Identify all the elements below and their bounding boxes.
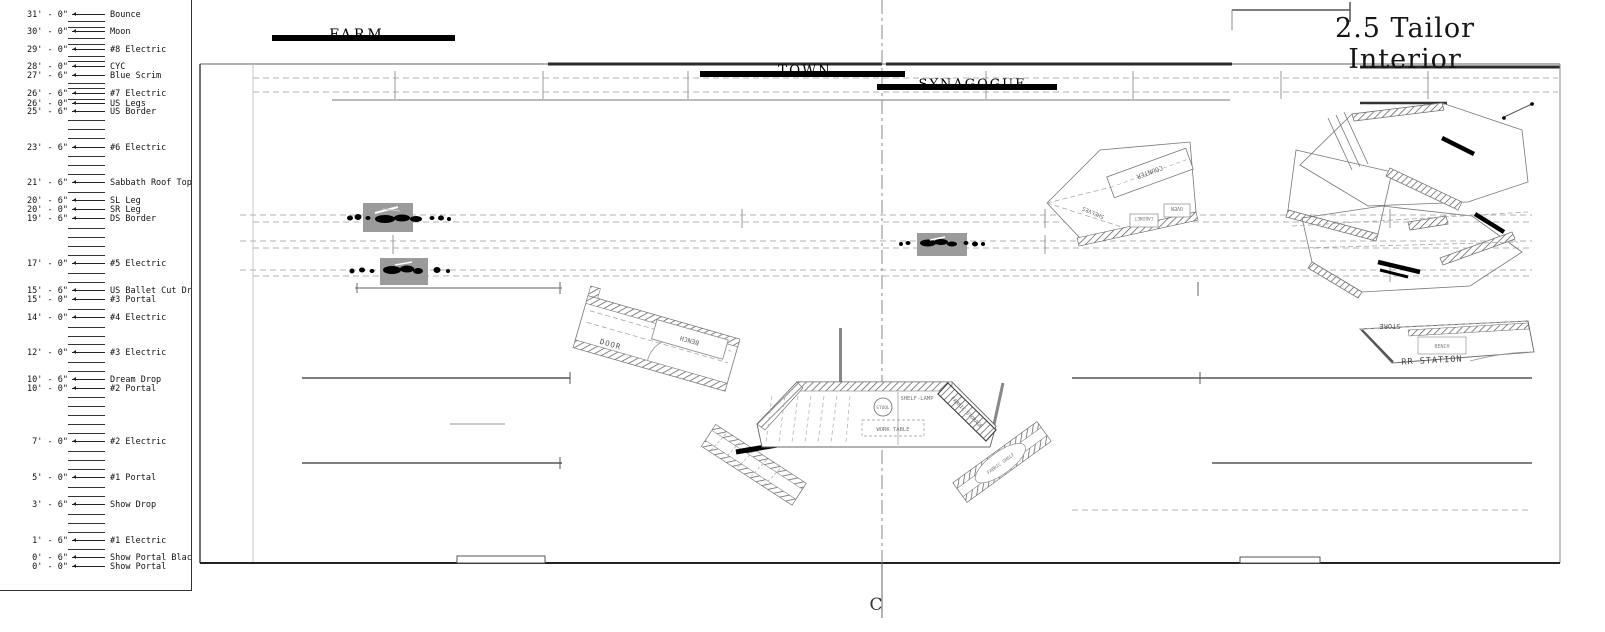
lineset-leader-line bbox=[72, 209, 105, 210]
lineset-label: #8 Electric bbox=[110, 45, 166, 55]
lineset-row: 30' - 0"Moon bbox=[0, 27, 191, 37]
lineset-label: #5 Electric bbox=[110, 259, 166, 269]
lineset-label: #6 Electric bbox=[110, 143, 166, 153]
lineset-label: Blue Scrim bbox=[110, 71, 161, 81]
ground-plan: C BENCH bbox=[0, 0, 1605, 632]
lineset-height: 10' - 0" bbox=[0, 384, 68, 394]
lineset-label: #3 Electric bbox=[110, 348, 166, 358]
lineset-row: 15' - 0"#3 Portal bbox=[0, 295, 191, 305]
lineset-tick bbox=[68, 228, 105, 229]
lineset-tick bbox=[68, 237, 105, 238]
lineset-row: 17' - 0"#5 Electric bbox=[0, 259, 191, 269]
lineset-height: 3' - 6" bbox=[0, 500, 68, 510]
set-piece-door-unit: BENCH DOOR bbox=[573, 286, 743, 391]
lineset-height: 25' - 6" bbox=[0, 107, 68, 117]
lineset-height: 27' - 6" bbox=[0, 71, 68, 81]
lineset-leader-line bbox=[72, 147, 105, 148]
lineset-leader-line bbox=[72, 504, 105, 505]
lineset-label: Show Portal bbox=[110, 562, 166, 572]
lineset-tick bbox=[68, 120, 105, 121]
lineset-tick bbox=[68, 129, 105, 130]
set-piece-roof-tops bbox=[1286, 102, 1534, 298]
lineset-leader-line bbox=[72, 379, 105, 380]
lineset-tick bbox=[68, 362, 105, 363]
lineset-label: #2 Portal bbox=[110, 384, 156, 394]
lineset-leader-line bbox=[72, 566, 105, 567]
lineset-leader-line bbox=[72, 290, 105, 291]
set-piece-counter-unit: COUNTER CABINET OVEN SHELVES bbox=[1047, 142, 1198, 246]
lineset-row: 23' - 6"#6 Electric bbox=[0, 143, 191, 153]
lineset-tick bbox=[68, 38, 105, 39]
set-piece-rr-station: BENCH STORE RR STATION bbox=[1360, 321, 1534, 368]
lineset-tick bbox=[68, 309, 105, 310]
lineset-row: 7' - 0"#2 Electric bbox=[0, 437, 191, 447]
lineset-height: 23' - 6" bbox=[0, 143, 68, 153]
lineset-leader-line bbox=[72, 66, 105, 67]
lineset-height: 5' - 0" bbox=[0, 473, 68, 483]
lineset-tick bbox=[68, 433, 105, 434]
label-cabinet: CABINET bbox=[1134, 215, 1153, 221]
lineset-tick bbox=[68, 273, 105, 274]
centerline-symbol: C bbox=[869, 595, 882, 615]
label-stool: STOOL bbox=[876, 405, 890, 411]
lineset-label: #2 Electric bbox=[110, 437, 166, 447]
lineset-leader-line bbox=[72, 388, 105, 389]
lineset-height: 0' - 0" bbox=[0, 562, 68, 572]
lineset-tick bbox=[68, 61, 105, 62]
label-work-table: WORK TABLE bbox=[876, 427, 909, 433]
lineset-tick bbox=[68, 327, 105, 328]
lineset-tick bbox=[68, 344, 105, 345]
lineset-tick bbox=[68, 138, 105, 139]
lineset-leader-line bbox=[72, 103, 105, 104]
lineset-label: #7 Electric bbox=[110, 89, 166, 99]
lineset-row: 12' - 0"#3 Electric bbox=[0, 348, 191, 358]
label-oven: OVEN bbox=[1171, 205, 1183, 211]
lineset-height: 30' - 0" bbox=[0, 27, 68, 37]
lineset-tick bbox=[68, 496, 105, 497]
lineset-leader-line bbox=[72, 218, 105, 219]
lineset-leader-line bbox=[72, 49, 105, 50]
lineset-row: 10' - 0"#2 Portal bbox=[0, 384, 191, 394]
lineset-row: 21' - 6"Sabbath Roof Tops bbox=[0, 178, 191, 188]
render-blob-3 bbox=[899, 233, 985, 256]
lineset-tick bbox=[68, 21, 105, 22]
lineset-height: 7' - 0" bbox=[0, 437, 68, 447]
lineset-height: 29' - 0" bbox=[0, 45, 68, 55]
lineset-tick bbox=[68, 282, 105, 283]
lineset-height: 15' - 0" bbox=[0, 295, 68, 305]
lineset-height: 17' - 0" bbox=[0, 259, 68, 269]
lineset-label: DS Border bbox=[110, 214, 156, 224]
lineset-height: 12' - 0" bbox=[0, 348, 68, 358]
lineset-tick bbox=[68, 523, 105, 524]
lineset-height: 14' - 0" bbox=[0, 313, 68, 323]
lineset-tick bbox=[68, 487, 105, 488]
lineset-tick bbox=[68, 532, 105, 533]
lineset-tick bbox=[68, 469, 105, 470]
lineset-row: 26' - 6"#7 Electric bbox=[0, 89, 191, 99]
lineset-row: 0' - 0"Show Portal bbox=[0, 562, 191, 572]
centerline: C bbox=[869, 0, 882, 618]
lineset-tick bbox=[68, 99, 105, 100]
lineset-row: 27' - 6"Blue Scrim bbox=[0, 71, 191, 81]
lineset-height: 21' - 6" bbox=[0, 178, 68, 188]
lineset-tick bbox=[68, 255, 105, 256]
lineset-tick bbox=[68, 397, 105, 398]
lineset-tick bbox=[68, 371, 105, 372]
lineset-leader-line bbox=[72, 317, 105, 318]
lineset-row: 14' - 0"#4 Electric bbox=[0, 313, 191, 323]
lineset-tick bbox=[68, 44, 105, 45]
label-rr-station: RR STATION bbox=[1401, 354, 1463, 367]
lineset-tick bbox=[68, 88, 105, 89]
render-blob-1 bbox=[347, 203, 451, 232]
lineset-row: 3' - 6"Show Drop bbox=[0, 500, 191, 510]
lineset-label: Show Drop bbox=[110, 500, 156, 510]
lineset-tick bbox=[68, 424, 105, 425]
lineset-tick bbox=[68, 174, 105, 175]
lineset-tick bbox=[68, 549, 105, 550]
lineset-schedule: 31' - 0"Bounce30' - 0"Moon29' - 0"#8 Ele… bbox=[0, 0, 192, 591]
town-label: TOWN bbox=[745, 63, 865, 79]
lineset-tick bbox=[68, 406, 105, 407]
farm-label: FARM bbox=[297, 27, 417, 43]
lineset-leader-line bbox=[72, 31, 105, 32]
lineset-row: 25' - 6"US Border bbox=[0, 107, 191, 117]
synagogue-label: SYNAGOGUE bbox=[880, 77, 1065, 92]
lineset-leader-line bbox=[72, 477, 105, 478]
lineset-label: Moon bbox=[110, 27, 130, 37]
lineset-leader-line bbox=[72, 441, 105, 442]
lineset-row: 5' - 0"#1 Portal bbox=[0, 473, 191, 483]
lineset-tick bbox=[68, 460, 105, 461]
lineset-tick bbox=[68, 451, 105, 452]
lineset-leader-line bbox=[72, 111, 105, 112]
lineset-leader-line bbox=[72, 200, 105, 201]
lineset-leader-line bbox=[72, 75, 105, 76]
lineset-height: 26' - 6" bbox=[0, 89, 68, 99]
lineset-tick bbox=[68, 246, 105, 247]
lineset-tick bbox=[68, 56, 105, 57]
lineset-tick bbox=[68, 415, 105, 416]
lineset-label: #4 Electric bbox=[110, 313, 166, 323]
lineset-tick bbox=[68, 27, 105, 28]
lineset-leader-line bbox=[72, 263, 105, 264]
lineset-label: #1 Electric bbox=[110, 536, 166, 546]
lineset-leader-line bbox=[72, 14, 105, 15]
lineset-row: 29' - 0"#8 Electric bbox=[0, 45, 191, 55]
set-piece-tailor-shop: STOOL SHELF-LAMP WORK TABLE FABRIC STORA… bbox=[757, 382, 996, 447]
render-blob-2 bbox=[350, 258, 451, 285]
lineset-label: US Border bbox=[110, 107, 156, 117]
lineset-row: 1' - 6"#1 Electric bbox=[0, 536, 191, 546]
lineset-tick bbox=[68, 514, 105, 515]
lineset-row: 19' - 6"DS Border bbox=[0, 214, 191, 224]
lineset-tick bbox=[68, 83, 105, 84]
lineset-tick bbox=[68, 192, 105, 193]
lineset-label: Bounce bbox=[110, 10, 141, 20]
sheet-title: 2.5 Tailor Interior bbox=[1285, 13, 1525, 75]
lineset-tick bbox=[68, 336, 105, 337]
lineset-tick bbox=[68, 165, 105, 166]
lineset-label: #1 Portal bbox=[110, 473, 156, 483]
lineset-leader-line bbox=[72, 299, 105, 300]
lineset-leader-line bbox=[72, 352, 105, 353]
lineset-leader-line bbox=[72, 540, 105, 541]
lineset-tick bbox=[68, 156, 105, 157]
label-bench-right: BENCH bbox=[1434, 344, 1449, 350]
lineset-label: #3 Portal bbox=[110, 295, 156, 305]
guide-tick-marks bbox=[393, 71, 1428, 282]
lineset-height: 19' - 6" bbox=[0, 214, 68, 224]
lineset-leader-line bbox=[72, 93, 105, 94]
lineset-height: 31' - 0" bbox=[0, 10, 68, 20]
label-store: STORE bbox=[1379, 322, 1400, 330]
lineset-leader-line bbox=[72, 182, 105, 183]
lineset-row: 31' - 0"Bounce bbox=[0, 10, 191, 20]
label-shelf-lamp: SHELF-LAMP bbox=[900, 396, 934, 402]
lineset-height: 1' - 6" bbox=[0, 536, 68, 546]
lineset-label: Sabbath Roof Tops bbox=[110, 178, 192, 188]
lineset-leader-line bbox=[72, 557, 105, 558]
